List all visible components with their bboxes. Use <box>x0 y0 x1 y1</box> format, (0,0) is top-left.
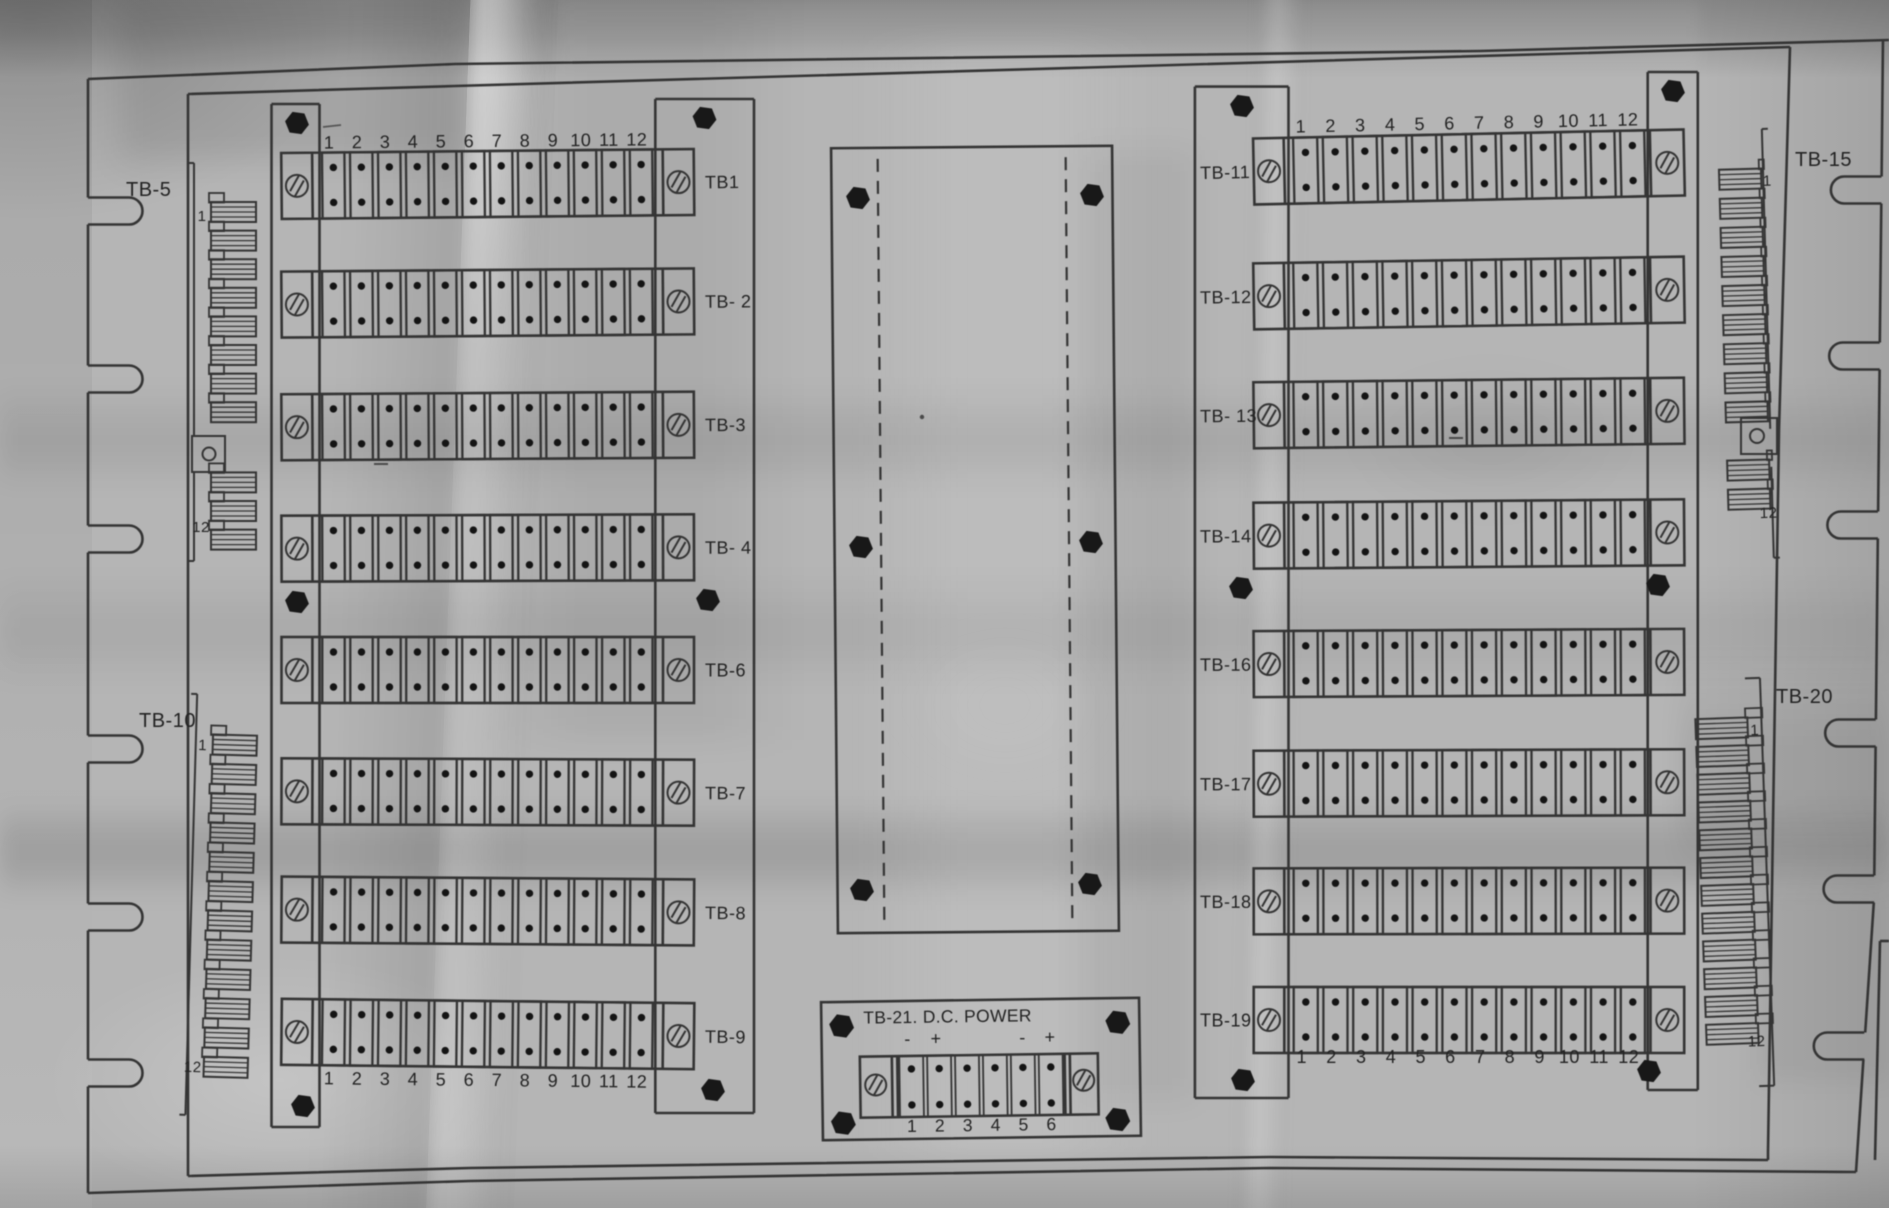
svg-text:9: 9 <box>548 130 559 150</box>
svg-text:5: 5 <box>436 131 447 151</box>
svg-text:TB- 13: TB- 13 <box>1200 406 1257 427</box>
svg-text:6: 6 <box>1046 1114 1057 1134</box>
svg-text:TB-15: TB-15 <box>1795 149 1852 171</box>
svg-text:TB-16: TB-16 <box>1200 655 1252 675</box>
svg-text:4: 4 <box>408 1069 419 1089</box>
svg-text:8: 8 <box>1504 112 1515 132</box>
svg-text:12: 12 <box>1759 505 1777 522</box>
svg-text:8: 8 <box>1505 1047 1516 1067</box>
svg-text:+: + <box>1044 1027 1055 1047</box>
svg-text:11: 11 <box>599 130 619 150</box>
svg-text:6: 6 <box>464 131 475 151</box>
svg-text:TB-11: TB-11 <box>1200 162 1251 183</box>
svg-text:2: 2 <box>935 1115 946 1135</box>
svg-text:9: 9 <box>1534 1047 1545 1067</box>
svg-text:10: 10 <box>1559 1047 1580 1067</box>
svg-text:1: 1 <box>198 208 207 225</box>
svg-text:3: 3 <box>963 1115 974 1135</box>
svg-text:4: 4 <box>991 1115 1002 1135</box>
svg-text:7: 7 <box>492 131 503 151</box>
svg-text:TB-7: TB-7 <box>705 783 746 803</box>
svg-text:1: 1 <box>1297 1047 1308 1067</box>
svg-text:7: 7 <box>1474 113 1485 133</box>
svg-text:TB-21. D.C. POWER: TB-21. D.C. POWER <box>863 1005 1032 1027</box>
svg-text:3: 3 <box>1356 1047 1367 1067</box>
svg-text:11: 11 <box>599 1071 619 1091</box>
svg-text:TB-18: TB-18 <box>1200 892 1252 912</box>
svg-text:7: 7 <box>492 1070 503 1090</box>
svg-text:1: 1 <box>324 132 335 152</box>
svg-text:12: 12 <box>1617 109 1638 129</box>
svg-text:3: 3 <box>380 1069 391 1089</box>
svg-text:-: - <box>904 1029 911 1049</box>
svg-text:TB-10: TB-10 <box>139 710 196 732</box>
svg-text:8: 8 <box>520 1070 531 1090</box>
svg-text:1: 1 <box>1295 116 1306 136</box>
svg-text:9: 9 <box>1533 111 1544 131</box>
svg-text:3: 3 <box>1355 115 1366 135</box>
svg-text:11: 11 <box>1589 1047 1609 1067</box>
svg-text:TB-6: TB-6 <box>705 661 746 681</box>
svg-text:1: 1 <box>907 1116 918 1136</box>
svg-text:8: 8 <box>520 131 531 151</box>
svg-text:TB-20: TB-20 <box>1776 686 1833 708</box>
svg-text:6: 6 <box>1445 1047 1456 1067</box>
svg-text:1: 1 <box>198 737 207 754</box>
svg-text:6: 6 <box>1444 113 1455 133</box>
svg-text:TB-14: TB-14 <box>1200 526 1252 546</box>
svg-text:TB- 2: TB- 2 <box>705 291 752 311</box>
svg-text:1: 1 <box>1763 173 1772 190</box>
svg-text:-: - <box>1019 1027 1026 1047</box>
svg-text:4: 4 <box>1386 1047 1397 1067</box>
svg-text:TB-19: TB-19 <box>1200 1011 1252 1031</box>
svg-text:6: 6 <box>464 1070 475 1090</box>
svg-text:12: 12 <box>626 1071 647 1091</box>
svg-text:5: 5 <box>1415 1047 1426 1067</box>
svg-text:TB1: TB1 <box>705 172 740 192</box>
svg-text:5: 5 <box>1018 1114 1029 1134</box>
svg-text:12: 12 <box>192 519 210 536</box>
svg-text:TB- 4: TB- 4 <box>705 538 752 558</box>
svg-text:10: 10 <box>570 130 591 150</box>
svg-text:5: 5 <box>1414 114 1425 134</box>
svg-text:4: 4 <box>1385 115 1396 135</box>
svg-text:TB-9: TB-9 <box>705 1027 746 1047</box>
svg-text:2: 2 <box>352 132 363 152</box>
svg-text:10: 10 <box>570 1071 591 1091</box>
svg-text:TB-5: TB-5 <box>126 179 171 201</box>
svg-text:TB-12: TB-12 <box>1200 287 1252 308</box>
svg-text:1: 1 <box>324 1068 335 1088</box>
svg-text:TB-3: TB-3 <box>705 415 746 435</box>
svg-text:12: 12 <box>1747 1033 1765 1051</box>
svg-text:TB-8: TB-8 <box>705 903 746 923</box>
svg-text:2: 2 <box>1326 1047 1337 1067</box>
svg-text:5: 5 <box>436 1069 447 1089</box>
svg-text:4: 4 <box>408 132 419 152</box>
svg-text:11: 11 <box>1588 110 1608 130</box>
svg-text:10: 10 <box>1558 111 1579 131</box>
svg-text:7: 7 <box>1475 1047 1486 1067</box>
svg-text:9: 9 <box>548 1071 559 1091</box>
svg-text:2: 2 <box>352 1069 363 1089</box>
svg-text:TB-17: TB-17 <box>1200 774 1252 794</box>
svg-text:2: 2 <box>1325 116 1336 136</box>
svg-text:+: + <box>930 1029 941 1049</box>
svg-text:1: 1 <box>1750 722 1759 739</box>
svg-text:12: 12 <box>184 1059 202 1076</box>
svg-text:3: 3 <box>380 132 391 152</box>
svg-text:12: 12 <box>626 129 647 149</box>
svg-text:12: 12 <box>1618 1047 1639 1067</box>
